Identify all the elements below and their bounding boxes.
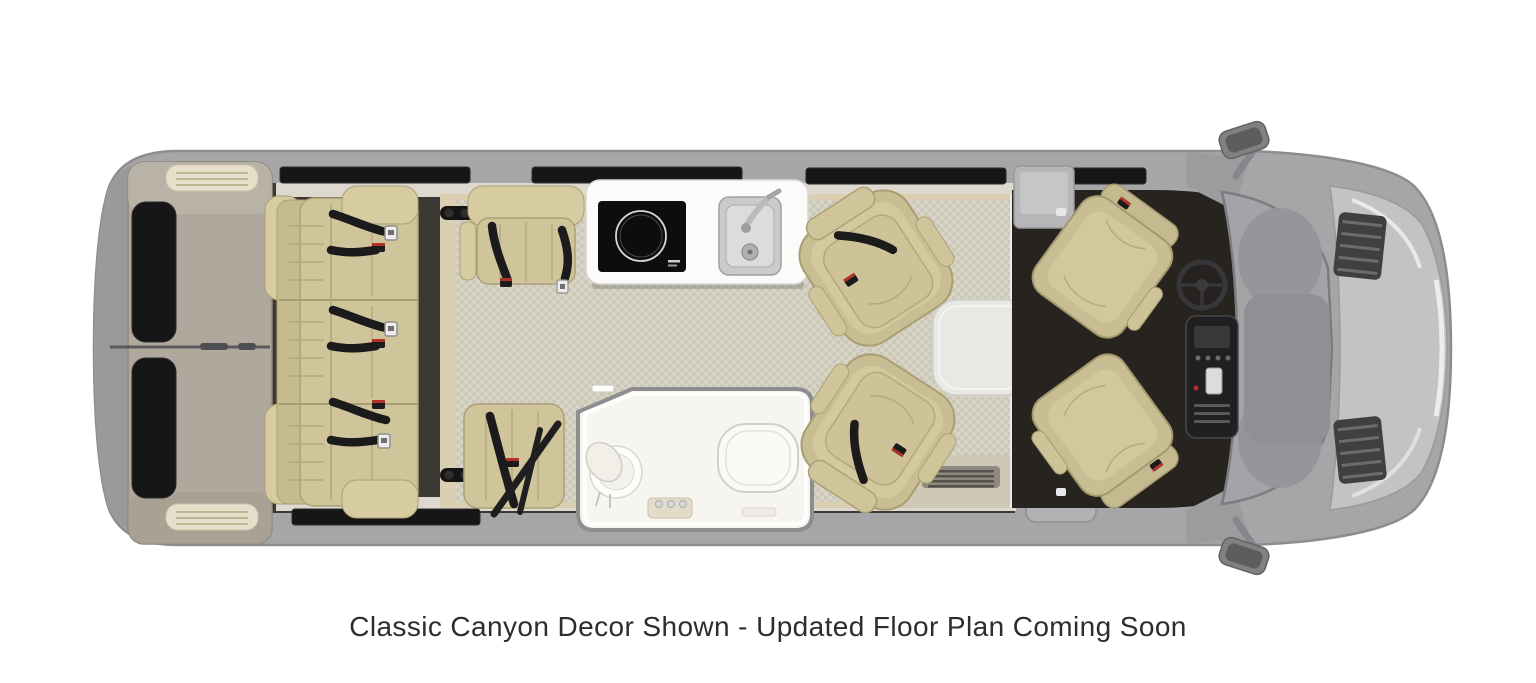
- kitchen-sink: [719, 191, 781, 275]
- cooktop-branding: [668, 260, 680, 263]
- belt-receiver: [1056, 208, 1066, 216]
- caption-text: Classic Canyon Decor Shown - Updated Flo…: [0, 611, 1536, 643]
- rear-sofa: [265, 186, 418, 518]
- shower-controls: [648, 498, 692, 518]
- door-handle: [238, 343, 256, 350]
- motorhome-top-view: [0, 0, 1536, 683]
- hood-vent: [1333, 416, 1387, 485]
- lounge-chair-bath-side: [464, 404, 564, 514]
- hood-vent: [1333, 212, 1387, 281]
- bathroom: [578, 385, 812, 530]
- belt-receiver: [1056, 488, 1066, 496]
- overhead-cabinet: [1014, 166, 1074, 228]
- dash-pad: [1244, 294, 1330, 444]
- rear-roof-vent: [166, 504, 258, 530]
- door-handle: [200, 343, 228, 350]
- center-console: [1186, 316, 1238, 438]
- rear-window-left: [132, 202, 176, 342]
- galley-counter: [586, 180, 808, 289]
- rear-roof-vent: [166, 165, 258, 191]
- rear-doors: [110, 162, 272, 544]
- cooktop-branding: [668, 265, 677, 267]
- bathroom-door-hinge: [592, 385, 614, 392]
- rear-window-right: [132, 358, 176, 498]
- lounge-chair-galley-side: [460, 186, 584, 293]
- induction-cooktop: [598, 201, 686, 272]
- dash-cowl: [1238, 208, 1322, 308]
- floorplan-image: Classic Canyon Decor Shown - Updated Flo…: [0, 0, 1536, 683]
- steering-wheel: [1179, 262, 1225, 308]
